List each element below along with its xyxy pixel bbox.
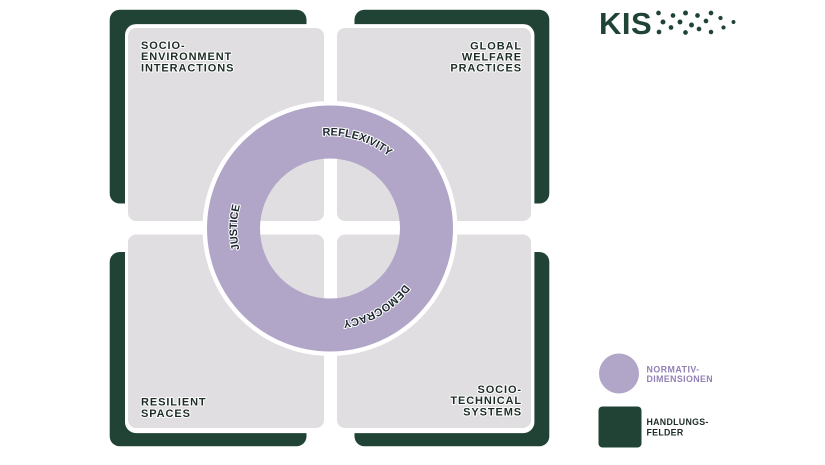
svg-text:ENVIRONMENT: ENVIRONMENT [141,51,232,63]
svg-text:SOCIO-: SOCIO- [477,384,522,396]
svg-text:SYSTEMS: SYSTEMS [463,406,522,418]
svg-text:GLOBAL: GLOBAL [470,40,522,52]
svg-text:SPACES: SPACES [141,408,191,420]
svg-text:KIS: KIS [599,6,652,41]
svg-text:SOCIO-: SOCIO- [141,40,186,52]
svg-text:TECHNICAL: TECHNICAL [450,395,522,407]
svg-text:RESILIENT: RESILIENT [141,397,207,409]
svg-text:PRACTICES: PRACTICES [450,63,522,75]
svg-text:DIMENSIONEN: DIMENSIONEN [647,374,713,384]
svg-text:INTERACTIONS: INTERACTIONS [141,62,234,74]
svg-text:WELFARE: WELFARE [462,52,522,64]
svg-text:HANDLUNGS-: HANDLUNGS- [647,417,709,427]
svg-text:FELDER: FELDER [647,428,684,438]
